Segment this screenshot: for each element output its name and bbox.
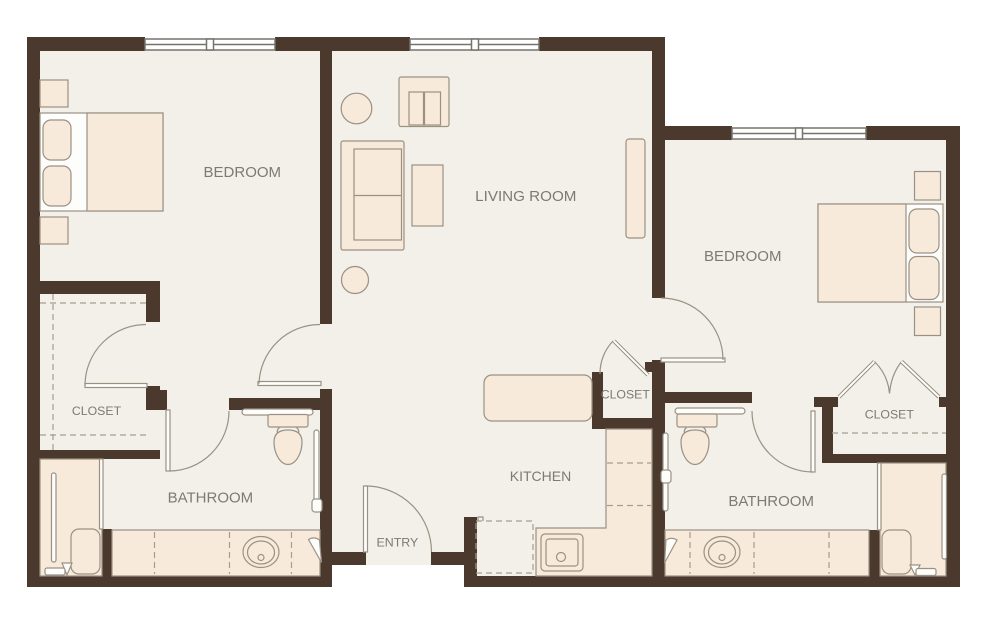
svg-text:LIVING ROOM: LIVING ROOM — [475, 188, 576, 205]
svg-text:BEDROOM: BEDROOM — [704, 248, 782, 265]
svg-text:BATHROOM: BATHROOM — [168, 490, 254, 507]
svg-text:CLOSET: CLOSET — [72, 404, 122, 418]
svg-text:BEDROOM: BEDROOM — [204, 164, 282, 181]
svg-text:ENTRY: ENTRY — [377, 535, 419, 549]
svg-text:CLOSET: CLOSET — [601, 387, 651, 401]
svg-text:CLOSET: CLOSET — [865, 407, 915, 421]
svg-text:BATHROOM: BATHROOM — [728, 493, 814, 510]
svg-text:KITCHEN: KITCHEN — [510, 468, 571, 484]
